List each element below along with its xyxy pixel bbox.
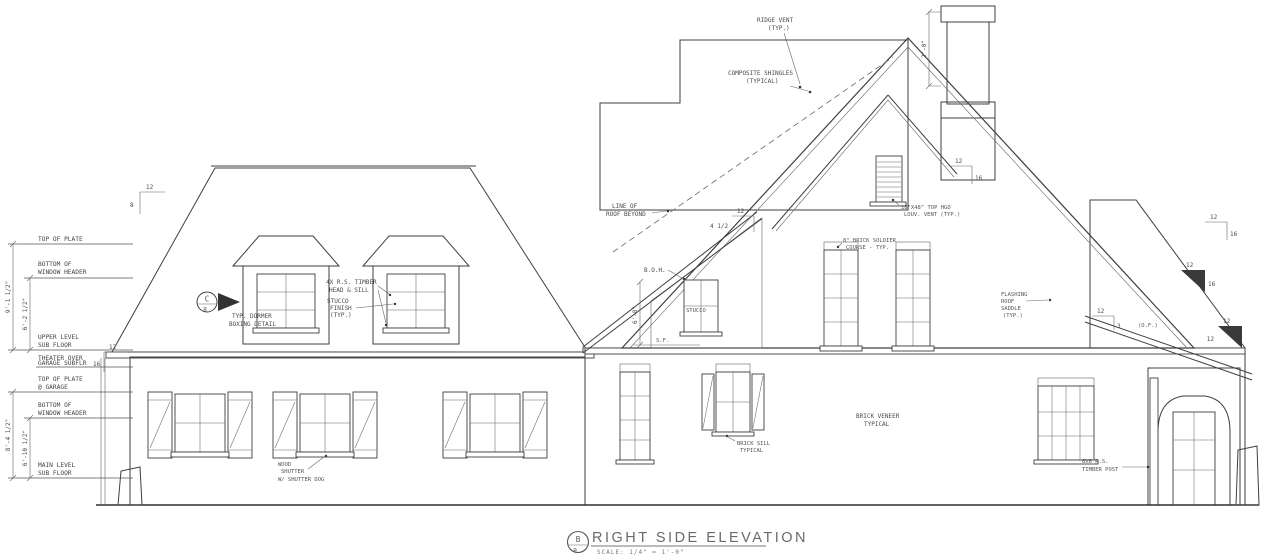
svg-text:TYPICAL: TYPICAL	[740, 448, 764, 454]
note-stucco-finish: STUCCO	[327, 298, 349, 305]
svg-text:TYPICAL: TYPICAL	[864, 421, 890, 428]
svg-text:16: 16	[975, 175, 983, 182]
svg-text:12: 12	[109, 344, 117, 351]
note-timber-head-sill: 4X R.S. TIMBER	[326, 279, 377, 286]
bubble-letter: C	[205, 295, 210, 304]
note-brick-soldier: 8" BRICK SOLDIER	[843, 238, 897, 244]
svg-text:4 1/2: 4 1/2	[710, 223, 728, 230]
svg-text:12: 12	[1186, 262, 1194, 269]
elevation-sheet: 2'-0"	[0, 0, 1263, 557]
pitch-right-eave: 12 16	[1205, 214, 1238, 240]
svg-text:SUB FLOOR: SUB FLOOR	[38, 470, 72, 477]
right-window-a	[616, 364, 654, 464]
note-composite-shingles: COMPOSITE SHINGLES	[728, 70, 793, 77]
svg-text:FINISH: FINISH	[330, 305, 352, 312]
dim-upper-overall: 9'-1 1/2"	[5, 281, 12, 314]
right-window-c	[1034, 378, 1098, 464]
dormer-right	[363, 236, 469, 344]
note-boh: B.O.H.	[644, 267, 666, 274]
svg-text:COURSE - TYP.: COURSE - TYP.	[846, 245, 889, 251]
note-roof-beyond: LINE OF	[612, 203, 638, 210]
stucco-section	[583, 212, 762, 353]
svg-text:ROOF BEYOND: ROOF BEYOND	[606, 211, 646, 218]
svg-text:12: 12	[955, 158, 963, 165]
downspout	[101, 358, 105, 505]
svg-text:@ GARAGE: @ GARAGE	[38, 384, 68, 391]
svg-text:BOXING DETAIL: BOXING DETAIL	[229, 321, 276, 328]
svg-text:LOUV. VENT (TYP.): LOUV. VENT (TYP.)	[904, 212, 960, 218]
detail-arrow	[218, 293, 240, 311]
note-louver-vent: 18"X48" TOP HGD	[901, 205, 951, 211]
drawing-title: RIGHT SIDE ELEVATION	[592, 530, 808, 546]
note-dormer-detail: TYP. DORMER	[232, 313, 272, 320]
gable-window-left	[820, 242, 862, 351]
shuttered-window-2	[273, 392, 377, 458]
note-brick-veneer: BRICK VENEER	[856, 413, 900, 420]
svg-text:16: 16	[1230, 231, 1238, 238]
note-wood-shutter: WOOD	[278, 462, 291, 468]
note-brick-sill: BRICK SILL	[737, 441, 771, 447]
note-ridge-vent: RIDGE VENT	[757, 17, 794, 24]
svg-text:WINDOW HEADER: WINDOW HEADER	[38, 269, 87, 276]
svg-text:ROOF: ROOF	[1001, 299, 1014, 305]
gable-louver-vent	[870, 156, 906, 206]
svg-text:HEAD & SILL: HEAD & SILL	[329, 287, 369, 294]
elevation-drawing: 2'-0"	[0, 0, 1263, 557]
pitch-porch-roof: 12 3	[1092, 308, 1121, 330]
shuttered-window-1	[148, 392, 252, 458]
svg-text:(TYPICAL): (TYPICAL)	[746, 78, 779, 85]
dim-main-overall: 8'-4 1/2"	[5, 419, 12, 452]
level-bottom-header-main: BOTTOM OF	[38, 402, 72, 409]
note-stucco: STUCCO	[686, 308, 706, 314]
svg-text:(TYP.): (TYP.)	[330, 312, 352, 319]
svg-text:16: 16	[1208, 281, 1216, 288]
right-window-b	[702, 364, 764, 436]
gable-window-right	[892, 242, 934, 351]
svg-text:SHUTTER: SHUTTER	[281, 469, 305, 475]
level-bottom-header-upper: BOTTOM OF	[38, 261, 72, 268]
svg-text:W/ SHUTTER DOG: W/ SHUTTER DOG	[278, 477, 324, 483]
dim-upper-header: 6'-2 1/2"	[22, 298, 29, 331]
level-main-subfloor: MAIN LEVEL	[38, 462, 76, 469]
note-sf: S.F.	[656, 338, 669, 344]
detail-bubble-letter: B	[576, 535, 581, 544]
svg-text:12: 12	[737, 208, 745, 215]
svg-text:SADDLE: SADDLE	[1001, 306, 1021, 312]
dim-header-subfloor: 6'-8"	[632, 306, 639, 324]
chimney	[941, 6, 995, 180]
stone-pier-right	[1236, 446, 1259, 505]
svg-text:12: 12	[1210, 214, 1218, 221]
svg-text:3: 3	[1117, 323, 1121, 330]
svg-text:GARAGE SUBFLR: GARAGE SUBFLR	[38, 360, 87, 367]
detail-bubble-number: 9	[573, 548, 577, 555]
pitch-triangle-lower: 12 12	[1207, 318, 1242, 348]
svg-text:12: 12	[1207, 336, 1215, 343]
line-of-roof-beyond	[613, 57, 893, 252]
svg-text:SUB FLOOR: SUB FLOOR	[38, 342, 72, 349]
entry-bay	[1148, 368, 1240, 505]
note-flashing: FLASHING	[1001, 292, 1028, 298]
svg-text:16: 16	[93, 361, 101, 368]
svg-text:(TYP.): (TYP.)	[768, 25, 790, 32]
svg-text:12: 12	[1223, 318, 1231, 325]
level-upper-subfloor: UPPER LEVEL	[38, 334, 79, 341]
left-dimension-stack: TOP OF PLATE BOTTOM OF WINDOW HEADER UPP…	[5, 236, 133, 481]
bubble-number: 8	[203, 307, 207, 314]
note-of: (O.F.)	[1138, 323, 1158, 329]
svg-text:TIMBER POST: TIMBER POST	[1082, 467, 1119, 473]
dormer-detail-bubble: C 8	[197, 292, 240, 314]
svg-text:12: 12	[146, 184, 154, 191]
pitch-left-roof: 12 8	[130, 184, 165, 214]
pitch-triangle-upper: 12 16	[1181, 262, 1216, 292]
title-block: B 9 RIGHT SIDE ELEVATION SCALE: 1/4" = 1…	[568, 530, 808, 556]
timber-post	[1150, 378, 1158, 505]
shuttered-window-3	[443, 392, 547, 458]
note-timber-post: 6X6 R.S.	[1082, 459, 1109, 465]
level-garage-plate: TOP OF PLATE	[38, 376, 83, 383]
left-hip-roof	[106, 166, 594, 358]
svg-text:8: 8	[130, 202, 134, 209]
dim-main-header: 6'-10 1/2"	[22, 430, 29, 466]
level-top-of-plate: TOP OF PLATE	[38, 236, 83, 243]
svg-text:12: 12	[1097, 308, 1105, 315]
svg-text:WINDOW HEADER: WINDOW HEADER	[38, 410, 87, 417]
chimney-dimension: 2'-0"	[921, 9, 941, 89]
drawing-scale: SCALE: 1/4" = 1'-0"	[597, 549, 685, 556]
svg-text:(TYP.): (TYP.)	[1003, 313, 1023, 319]
